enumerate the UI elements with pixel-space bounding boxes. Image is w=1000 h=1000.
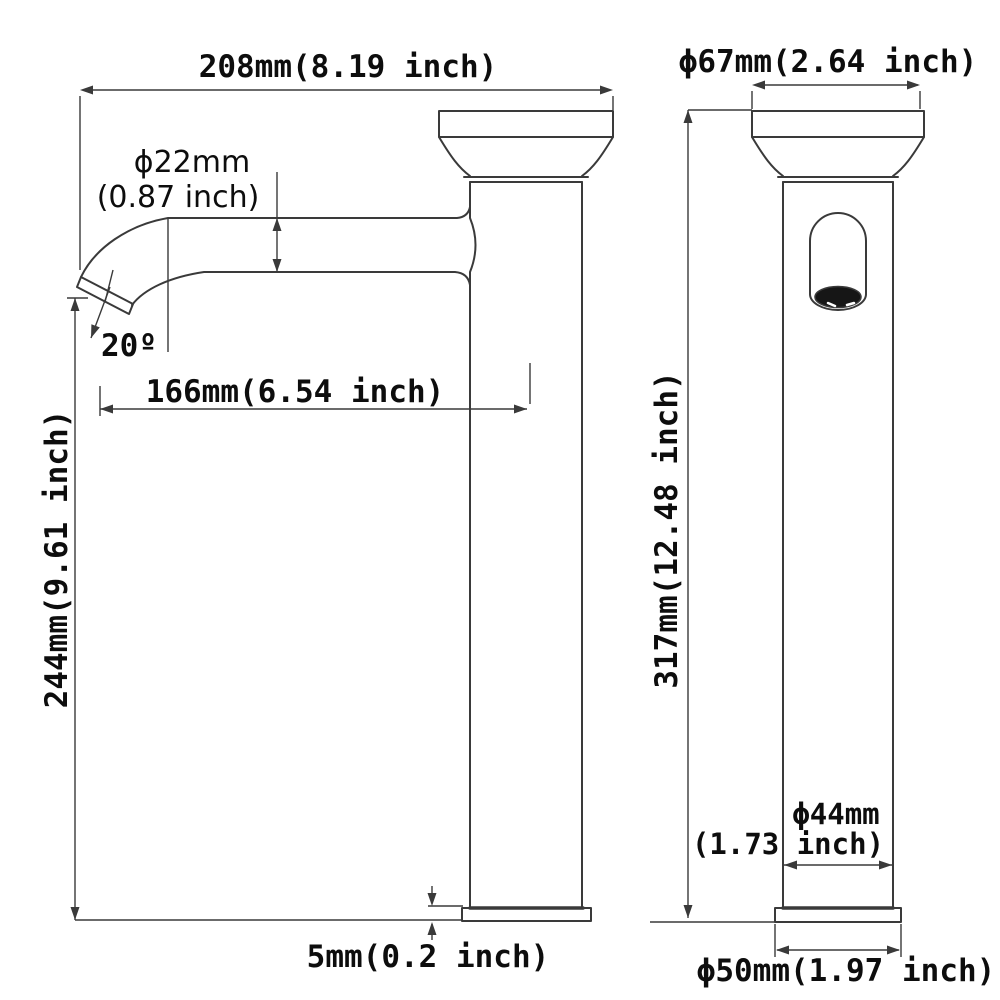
label-total-height: 317mm(12.48 inch) [649, 371, 685, 688]
label-spout-diameter-mm: ϕ22mm [134, 145, 250, 180]
arrow-down-icon [71, 907, 80, 920]
side-cap-lip [464, 177, 588, 182]
drawing-canvas: 208mm(8.19 inch) ϕ22mm (0.87 inch) 20º 1… [0, 0, 1000, 1000]
spout-outlet-arch [810, 213, 866, 294]
label-base-thickness: 5mm(0.2 inch) [307, 939, 550, 975]
label-spout-height: 244mm(9.61 inch) [39, 410, 75, 709]
arrow-right-icon [514, 405, 527, 414]
front-cap-lip [778, 177, 898, 182]
arrow-down-icon [273, 259, 282, 272]
arrow-up-icon [71, 298, 80, 311]
arrow-left-icon [752, 81, 765, 90]
label-body-diameter-inch: (1.73 inch) [692, 827, 884, 861]
arrow-up-icon [273, 218, 282, 231]
spout-tip-face [77, 277, 133, 314]
arrow-right-icon [600, 86, 613, 95]
label-spout-diameter-inch: (0.87 inch) [97, 180, 260, 215]
side-base-plate [462, 908, 591, 921]
side-cap-outline [439, 111, 613, 137]
spout-outline [81, 207, 470, 305]
arrow-down-icon [684, 905, 693, 918]
label-cap-diameter: ϕ67mm(2.64 inch) [679, 44, 978, 80]
arrow-right-icon [879, 861, 892, 870]
dim-line-cap-diameter [752, 85, 920, 109]
label-body-diameter-mm: ϕ44mm [792, 797, 879, 831]
side-view [75, 111, 613, 921]
arrow-left-icon [784, 861, 797, 870]
arrow-left-icon [80, 86, 93, 95]
front-base-plate [775, 908, 901, 922]
front-cap-flare [752, 137, 924, 176]
faucet-dimension-drawing: 208mm(8.19 inch) ϕ22mm (0.87 inch) 20º 1… [0, 0, 1000, 1000]
side-body-left-edge [470, 182, 476, 908]
arrow-up-icon [684, 110, 693, 123]
dimension-labels: 208mm(8.19 inch) ϕ22mm (0.87 inch) 20º 1… [39, 44, 995, 989]
arrow-left-icon [100, 405, 113, 414]
arrow-right-icon [907, 81, 920, 90]
arrow-up-icon [428, 922, 437, 935]
front-cap-outline [752, 111, 924, 137]
side-cap-flare [439, 137, 613, 176]
label-spout-angle: 20º [101, 328, 157, 364]
aerator [815, 287, 861, 308]
label-spout-reach: 166mm(6.54 inch) [146, 374, 445, 410]
label-base-diameter: ϕ50mm(1.97 inch) [697, 953, 996, 989]
arrow-down-icon [428, 893, 437, 906]
label-overall-width: 208mm(8.19 inch) [199, 49, 498, 85]
arrow-angle-icon [91, 324, 100, 338]
